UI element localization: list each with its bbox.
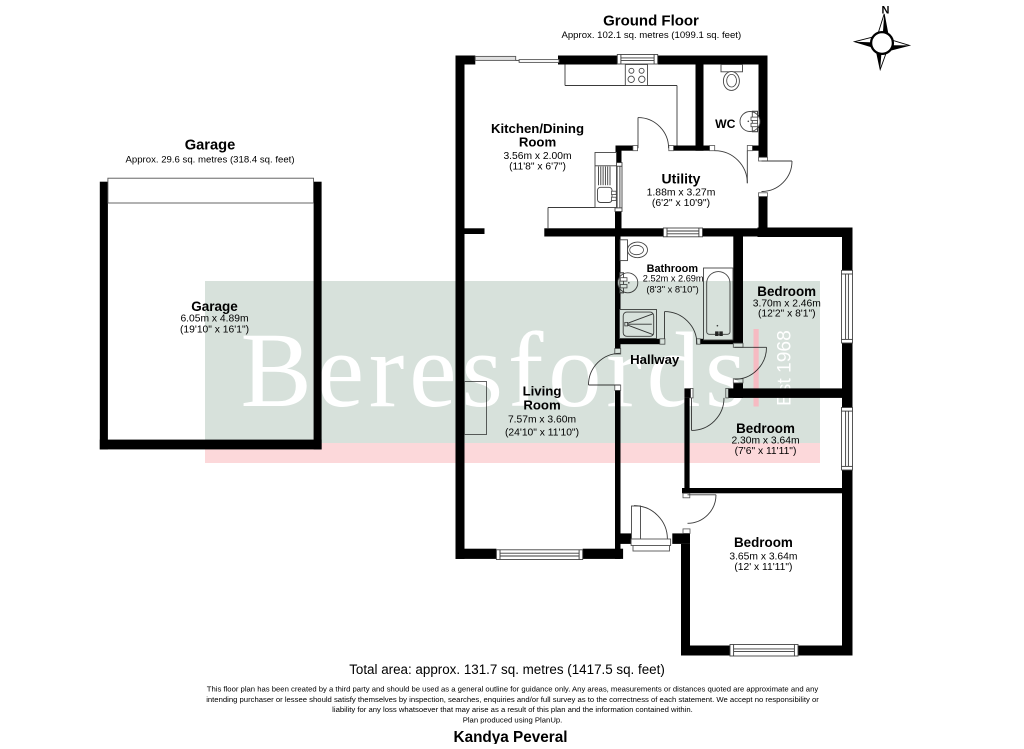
svg-text:Ground Floor: Ground Floor (603, 13, 699, 30)
svg-text:WC: WC (715, 117, 736, 131)
svg-text:Total area: approx. 131.7 sq.: Total area: approx. 131.7 sq. metres (14… (349, 662, 665, 677)
svg-text:Approx. 29.6 sq. metres (318.4: Approx. 29.6 sq. metres (318.4 sq. feet) (125, 154, 294, 165)
svg-text:3.56m x 2.00m: 3.56m x 2.00m (503, 151, 571, 162)
svg-text:(12' x 11'11"): (12' x 11'11") (734, 562, 792, 573)
svg-text:Kandya Peveral: Kandya Peveral (454, 729, 568, 744)
svg-text:(6'2" x 10'9"): (6'2" x 10'9") (652, 198, 710, 209)
svg-text:3.65m x 3.64m: 3.65m x 3.64m (729, 551, 797, 562)
svg-text:Approx. 102.1 sq. metres (1099: Approx. 102.1 sq. metres (1099.1 sq. fee… (561, 30, 741, 41)
svg-text:Utility: Utility (662, 170, 701, 186)
svg-text:N: N (882, 4, 890, 16)
svg-text:Beresfords: Beresfords (241, 312, 747, 430)
svg-text:Plan produced using PlanUp.: Plan produced using PlanUp. (463, 716, 563, 725)
svg-text:intending purchaser or lessee: intending purchaser or lessee should sat… (206, 695, 819, 704)
svg-text:This floor plan has been creat: This floor plan has been created by a th… (207, 685, 819, 694)
svg-text:1.88m x 3.27m: 1.88m x 3.27m (647, 187, 716, 198)
svg-text:Room: Room (519, 135, 556, 150)
svg-text:Bedroom: Bedroom (734, 535, 793, 550)
svg-text:liability for any loss whatsoe: liability for any loss whatsoever that m… (332, 705, 693, 714)
svg-text:Garage: Garage (185, 137, 236, 153)
svg-text:(11'8" x 6'7"): (11'8" x 6'7") (509, 162, 566, 173)
svg-text:Est 1968: Est 1968 (775, 330, 796, 406)
